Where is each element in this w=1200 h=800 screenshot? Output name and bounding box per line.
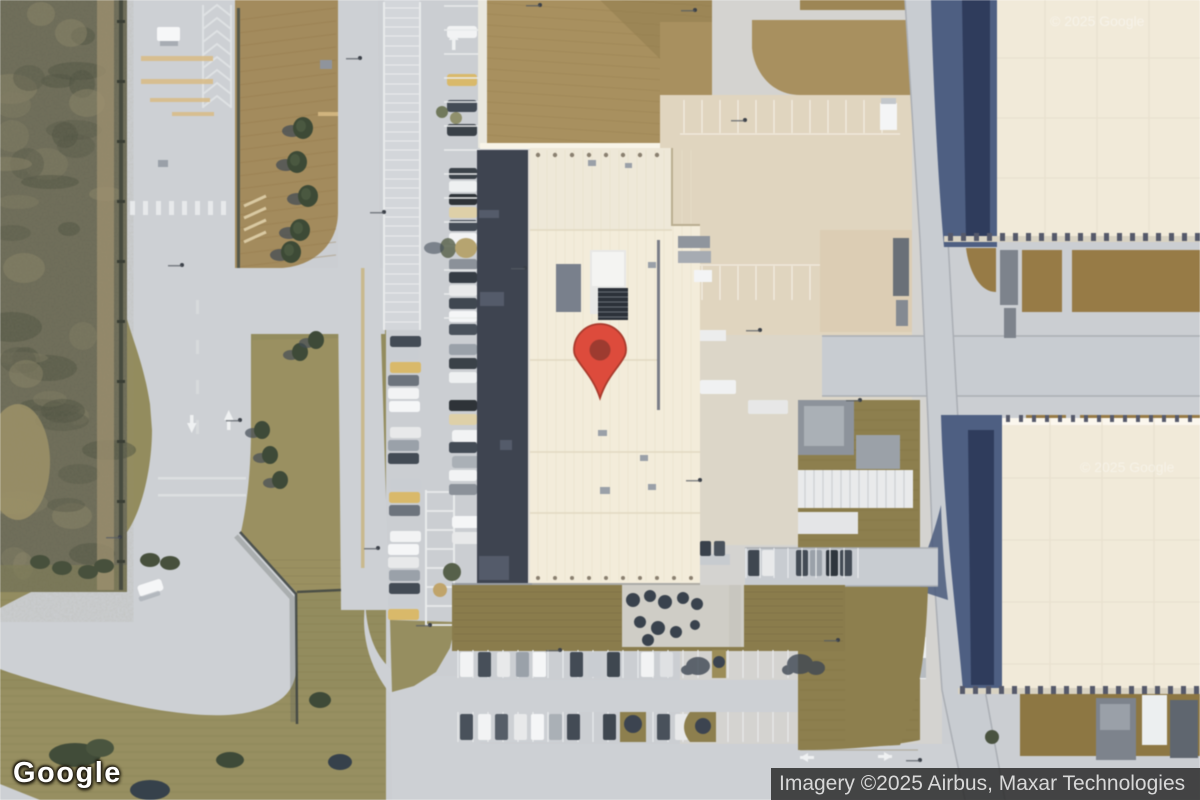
svg-text:© 2025 Google: © 2025 Google (1050, 13, 1145, 29)
svg-text:© 2025 Google: © 2025 Google (1080, 459, 1175, 475)
